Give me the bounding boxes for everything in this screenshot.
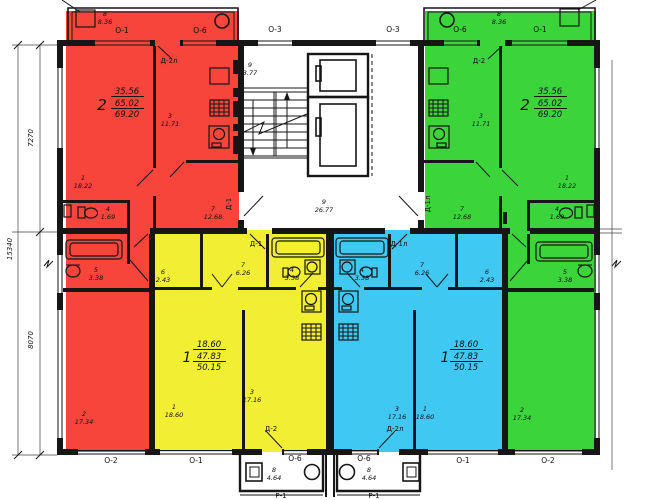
living-area-value: 35.56 xyxy=(538,87,563,97)
room-area: 6.26 xyxy=(415,269,429,277)
total-area-value: 50.15 xyxy=(454,363,478,373)
living-area-value: 18.60 xyxy=(454,340,478,350)
window-label: О-1 xyxy=(189,456,203,465)
window-label: О-6 xyxy=(193,26,207,35)
stair-down-arrow xyxy=(250,148,256,156)
room-number: 3 xyxy=(250,388,254,396)
room-area: 17.34 xyxy=(75,418,94,426)
door-label: Д-1 xyxy=(225,198,233,210)
room-area: 17.16 xyxy=(243,396,262,404)
room-number: 8 xyxy=(497,10,501,18)
room-number: 3 xyxy=(395,405,399,413)
room-area: 6.26 xyxy=(236,269,250,277)
floor-plan-drawing: 7270 8070 15340 О-1 О-6 О-3 О-3 О-6 О-1 … xyxy=(0,0,650,500)
room-area: 12.68 xyxy=(453,213,472,221)
room-area: 1.69 xyxy=(101,213,115,221)
window-label: О-6 xyxy=(288,454,302,463)
room-number: 4 xyxy=(290,266,294,274)
room-number: 5 xyxy=(94,266,98,274)
left-porch-pier xyxy=(246,463,262,481)
dim-total: 15340 xyxy=(6,237,14,260)
room-area: 12.68 xyxy=(204,213,223,221)
apartment-rooms-count: 2 xyxy=(520,96,530,114)
floor-plan-canvas: 7270 8070 15340 О-1 О-6 О-3 О-3 О-6 О-1 … xyxy=(0,0,650,500)
overall-area-value: 65.02 xyxy=(538,99,562,109)
total-area-value: 69.20 xyxy=(538,110,562,120)
porch-type-label: Р-1 xyxy=(368,492,379,500)
window-label: О-2 xyxy=(104,456,118,465)
window-label: О-1 xyxy=(456,456,470,465)
room-number: 1 xyxy=(172,403,176,411)
dim-upper: 7270 xyxy=(27,129,35,147)
right-porch-pier xyxy=(403,463,419,481)
room-area: 2.43 xyxy=(156,276,170,284)
room-number: 3 xyxy=(168,112,172,120)
window-label: О-3 xyxy=(386,25,400,34)
room-number: 8 xyxy=(272,466,276,474)
overall-area-value: 65.02 xyxy=(115,99,139,109)
room-area: 17.16 xyxy=(388,413,407,421)
door-label: Д-2 xyxy=(473,57,485,65)
total-area-value: 69.20 xyxy=(115,110,139,120)
room-number: 3 xyxy=(479,112,483,120)
room-area: 3.77 xyxy=(243,69,258,77)
room-area: 11.71 xyxy=(472,120,491,128)
dim-lower: 8070 xyxy=(27,331,35,349)
door-label: Д-2 xyxy=(265,425,277,433)
room-area: 4.64 xyxy=(362,474,376,482)
total-area-value: 50.15 xyxy=(197,363,221,373)
room-area: 26.77 xyxy=(315,206,334,214)
room-number: 6 xyxy=(161,268,165,276)
room-area: 8.36 xyxy=(98,18,112,26)
door-label: Д-2л xyxy=(161,57,178,65)
window-label: О-3 xyxy=(268,25,282,34)
door-label: Д-1 xyxy=(250,240,262,248)
room-number: 9 xyxy=(248,61,252,69)
elevators xyxy=(308,54,372,176)
room-number: 9 xyxy=(322,198,326,206)
door-label: Д-1л xyxy=(391,240,408,248)
room-area: 18.60 xyxy=(165,411,184,419)
window-label: О-6 xyxy=(357,454,371,463)
room-area: 18.22 xyxy=(74,182,93,190)
overall-area-value: 47.83 xyxy=(454,352,478,362)
right-porch-column xyxy=(340,465,355,480)
room-area: 17.34 xyxy=(513,414,532,422)
left-porch xyxy=(240,455,323,491)
room-number: 8 xyxy=(367,466,371,474)
room-number: 4 xyxy=(555,205,559,213)
right-porch xyxy=(337,455,420,491)
room-area: 3.38 xyxy=(285,274,299,282)
room-area: 2.43 xyxy=(480,276,494,284)
window-label: О-2 xyxy=(541,456,555,465)
window-label: О-6 xyxy=(453,25,467,34)
apartment-rooms-count: 2 xyxy=(97,96,107,114)
room-number: 6 xyxy=(485,268,489,276)
small-elevator-car xyxy=(320,60,356,91)
room-number: 1 xyxy=(565,174,569,182)
room-area: 18.60 xyxy=(416,413,435,421)
room-area: 1.69 xyxy=(550,213,564,221)
staircase xyxy=(240,88,307,158)
room-number: 1 xyxy=(81,174,85,182)
room-area: 11.71 xyxy=(161,120,180,128)
room-area: 3.38 xyxy=(558,276,572,284)
apartment-rooms-count: 1 xyxy=(183,350,192,366)
room-number: 4 xyxy=(106,205,110,213)
overall-area-value: 47.83 xyxy=(197,352,221,362)
window-label: О-1 xyxy=(533,25,547,34)
door-label: Д-2л xyxy=(387,425,404,433)
room-number: 8 xyxy=(103,10,107,18)
room-area: 3.38 xyxy=(89,274,103,282)
living-area-value: 35.56 xyxy=(115,87,140,97)
window-label: О-1 xyxy=(115,26,129,35)
room-area: 8.36 xyxy=(492,18,506,26)
stair-up-arrow xyxy=(284,92,290,100)
apartment-rooms-count: 1 xyxy=(441,350,450,366)
porch-type-label: Р-1 xyxy=(275,492,286,500)
room-area: 18.22 xyxy=(558,182,577,190)
room-number: 5 xyxy=(563,268,567,276)
room-number: 1 xyxy=(423,405,427,413)
room-number: 2 xyxy=(520,406,524,414)
room-area: 4.64 xyxy=(267,474,281,482)
room-number: 2 xyxy=(82,410,86,418)
room-area: 3.38 xyxy=(355,274,369,282)
door-label: Д-1л xyxy=(424,196,432,213)
room-number: 4 xyxy=(360,266,364,274)
left-porch-column xyxy=(305,465,320,480)
large-elevator-car xyxy=(320,104,356,166)
living-area-value: 18.60 xyxy=(197,340,221,350)
